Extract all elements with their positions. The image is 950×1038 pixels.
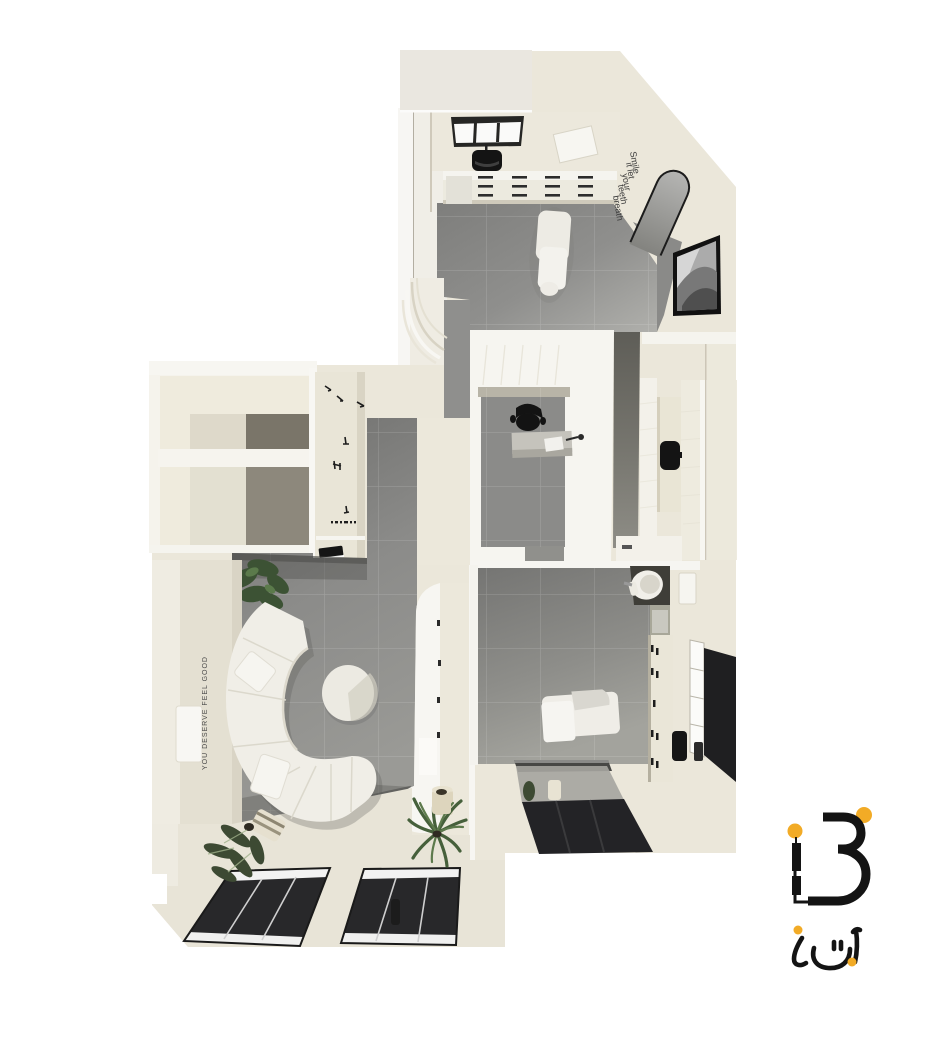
svg-text:YOU DESERVE FEEL GOOD: YOU DESERVE FEEL GOOD	[202, 656, 209, 770]
